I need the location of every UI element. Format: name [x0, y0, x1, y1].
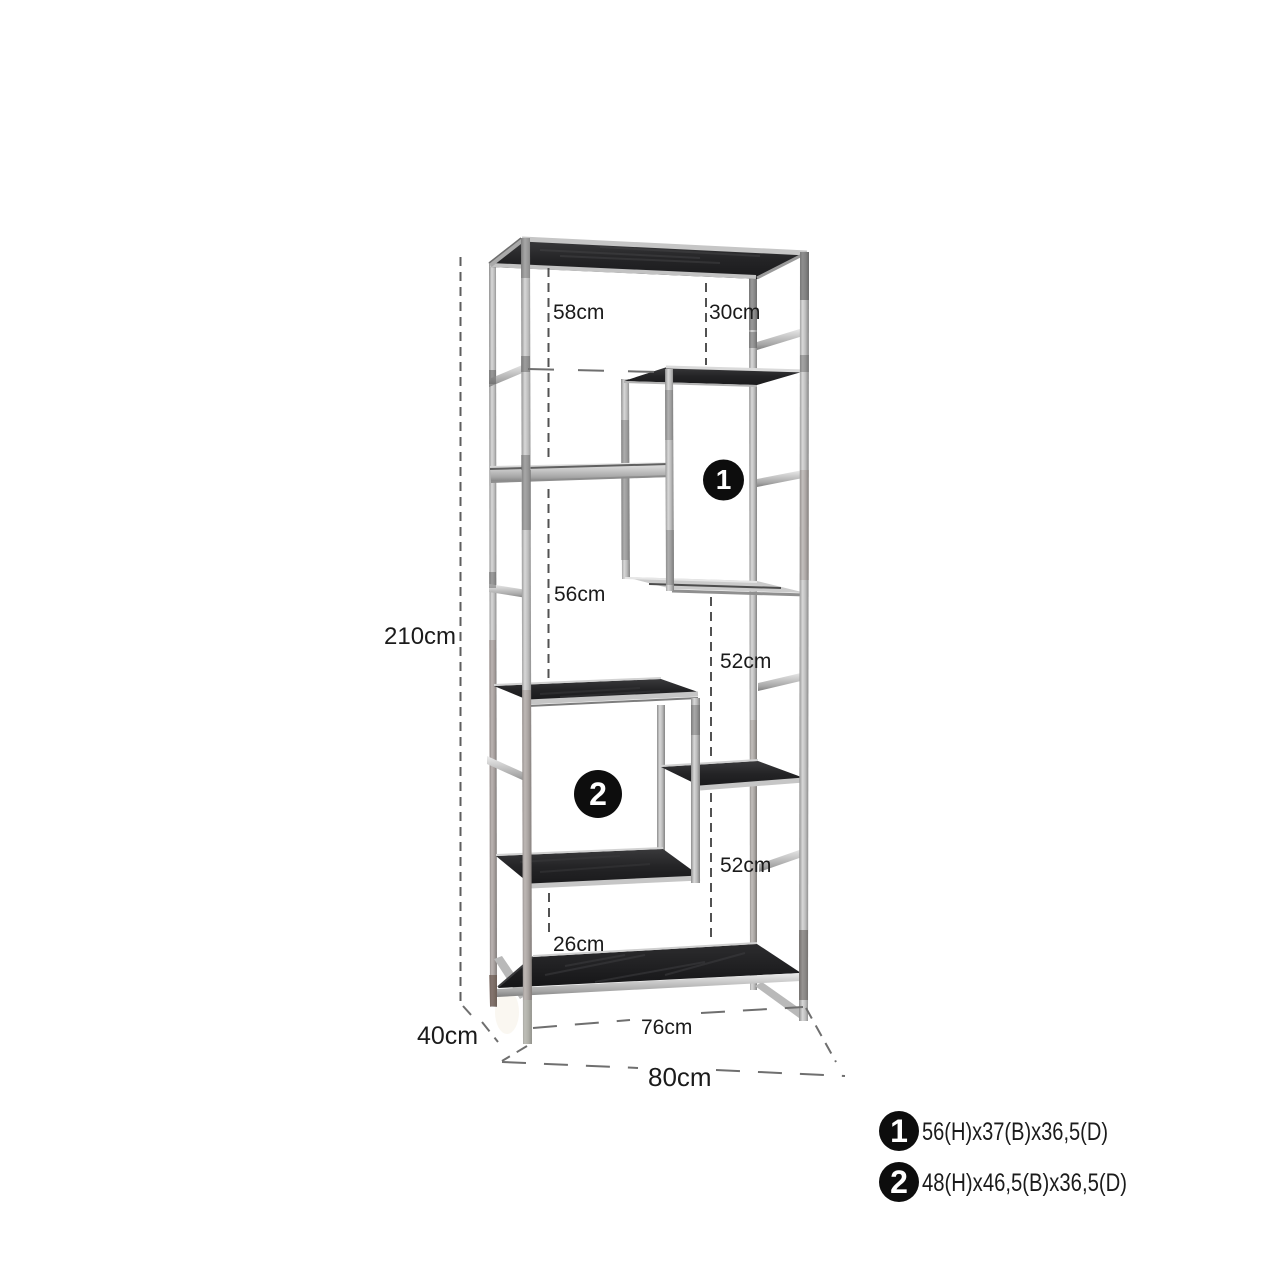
- svg-text:210cm: 210cm: [384, 623, 456, 650]
- svg-text:56cm: 56cm: [554, 583, 605, 606]
- svg-text:52cm: 52cm: [720, 650, 771, 673]
- svg-text:56(H)x37(B)x36,5(D): 56(H)x37(B)x36,5(D): [922, 1118, 1108, 1146]
- svg-text:76cm: 76cm: [641, 1016, 692, 1039]
- svg-text:26cm: 26cm: [553, 933, 604, 956]
- svg-text:48(H)x46,5(B)x36,5(D): 48(H)x46,5(B)x36,5(D): [922, 1169, 1127, 1197]
- svg-text:1: 1: [890, 1113, 908, 1149]
- svg-text:2: 2: [589, 776, 607, 812]
- svg-text:40cm: 40cm: [417, 1022, 478, 1050]
- svg-text:30cm: 30cm: [709, 301, 760, 324]
- svg-text:2: 2: [890, 1164, 908, 1200]
- svg-text:52cm: 52cm: [720, 854, 771, 877]
- svg-text:58cm: 58cm: [553, 301, 604, 324]
- svg-text:1: 1: [716, 464, 732, 495]
- svg-text:80cm: 80cm: [648, 1062, 712, 1092]
